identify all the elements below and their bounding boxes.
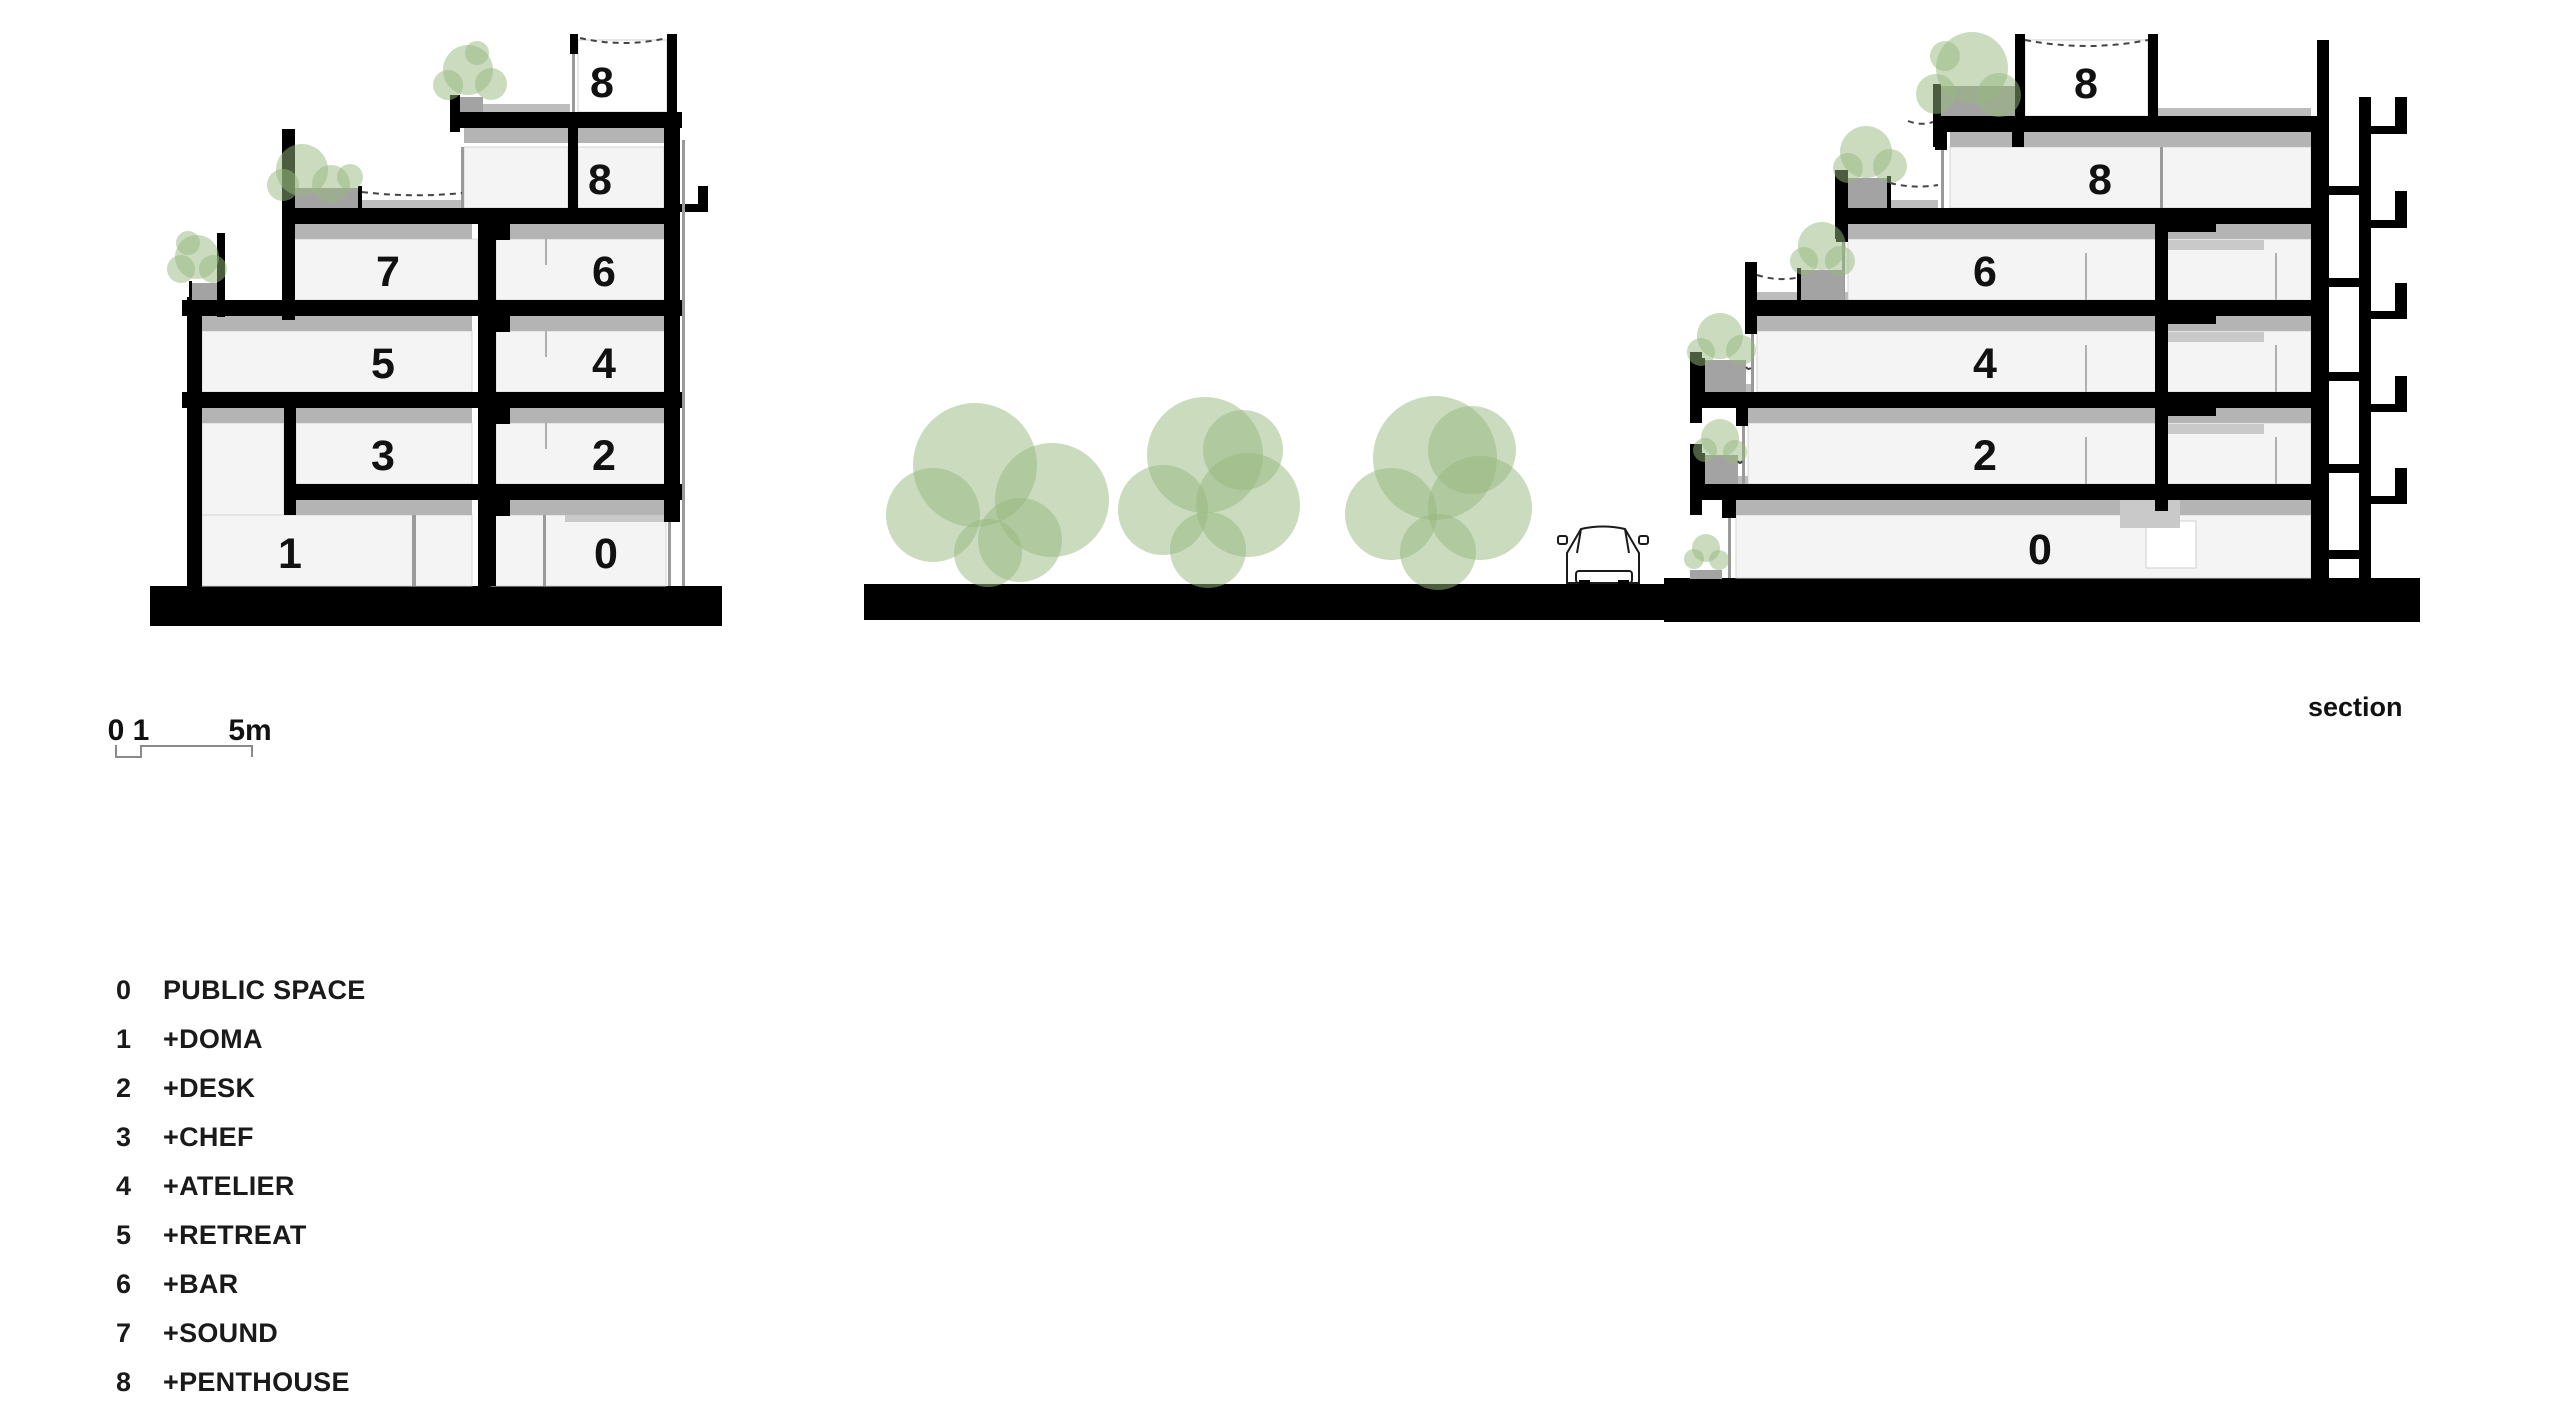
legend-row: 6+BAR bbox=[116, 1260, 366, 1309]
floor-label: 5 bbox=[371, 340, 395, 388]
floor-label: 7 bbox=[376, 248, 400, 296]
penthouse-post-right bbox=[2148, 34, 2158, 116]
legend-label: +BAR bbox=[163, 1269, 238, 1300]
street-trees bbox=[886, 396, 1532, 590]
program-legend: 0PUBLIC SPACE 1+DOMA 2+DESK 3+CHEF 4+ATE… bbox=[116, 966, 366, 1407]
floor-label: 8 bbox=[590, 59, 614, 107]
legend-number: 2 bbox=[116, 1073, 163, 1104]
floor-label: 2 bbox=[592, 432, 616, 480]
legend-label: +SOUND bbox=[163, 1318, 278, 1349]
penthouse-post-left bbox=[570, 34, 578, 54]
car bbox=[1558, 527, 1648, 585]
floor-label: 8 bbox=[588, 156, 612, 204]
floor-label: 8 bbox=[2088, 156, 2112, 204]
floor-label: 2 bbox=[1973, 432, 1997, 480]
legend-label: +CHEF bbox=[163, 1122, 254, 1153]
scale-tick-1: 1 bbox=[133, 714, 150, 747]
scale-bar: 0 1 5m bbox=[108, 714, 272, 757]
floor-label: 6 bbox=[592, 248, 616, 296]
floor-label: 6 bbox=[1973, 248, 1997, 296]
legend-label: +ATELIER bbox=[163, 1171, 295, 1202]
legend-number: 3 bbox=[116, 1122, 163, 1153]
right-building: 0 2 4 6 8 8 bbox=[1684, 32, 2407, 585]
legend-row: 1+DOMA bbox=[116, 1015, 366, 1064]
floor-label: 0 bbox=[2028, 526, 2052, 574]
legend-row: 7+SOUND bbox=[116, 1309, 366, 1358]
car-mirror bbox=[1558, 536, 1567, 544]
section-drawing: 1 3 5 7 0 2 4 6 8 8 bbox=[0, 0, 2560, 1417]
floor-label: 4 bbox=[592, 340, 616, 388]
legend-label: +DOMA bbox=[163, 1024, 263, 1055]
scale-tick-0: 0 bbox=[108, 714, 125, 747]
legend-row: 2+DESK bbox=[116, 1064, 366, 1113]
floor-label: 1 bbox=[278, 530, 302, 578]
legend-number: 8 bbox=[116, 1367, 163, 1398]
legend-number: 6 bbox=[116, 1269, 163, 1300]
floor-label: 4 bbox=[1973, 340, 1997, 388]
legend-row: 4+ATELIER bbox=[116, 1162, 366, 1211]
legend-row: 0PUBLIC SPACE bbox=[116, 966, 366, 1015]
left-building: 1 3 5 7 0 2 4 6 8 8 bbox=[167, 34, 708, 586]
drawing-canvas: 1 3 5 7 0 2 4 6 8 8 bbox=[0, 0, 2560, 1417]
floor-label: 8 bbox=[2074, 60, 2098, 108]
legend-number: 5 bbox=[116, 1220, 163, 1251]
car-mirror bbox=[1639, 536, 1648, 544]
legend-label: +DESK bbox=[163, 1073, 255, 1104]
legend-number: 0 bbox=[116, 975, 163, 1006]
legend-row: 8+PENTHOUSE bbox=[116, 1358, 366, 1407]
penthouse-post-right bbox=[667, 34, 677, 116]
balcony-wall bbox=[2359, 97, 2371, 578]
legend-row: 5+RETREAT bbox=[116, 1211, 366, 1260]
floor-label: 0 bbox=[594, 530, 618, 578]
legend-label: +PENTHOUSE bbox=[163, 1367, 350, 1398]
scale-tick-5m: 5m bbox=[228, 714, 271, 747]
legend-number: 1 bbox=[116, 1024, 163, 1055]
legend-label: +RETREAT bbox=[163, 1220, 307, 1251]
floor-label: 3 bbox=[371, 432, 395, 480]
legend-number: 4 bbox=[116, 1171, 163, 1202]
ground-floor-box bbox=[2146, 521, 2196, 568]
legend-label: PUBLIC SPACE bbox=[163, 975, 366, 1006]
legend-number: 7 bbox=[116, 1318, 163, 1349]
terrace-post bbox=[1745, 262, 1757, 331]
balcony-bracket bbox=[698, 186, 708, 212]
drawing-title: section bbox=[2308, 692, 2403, 722]
legend-row: 3+CHEF bbox=[116, 1113, 366, 1162]
